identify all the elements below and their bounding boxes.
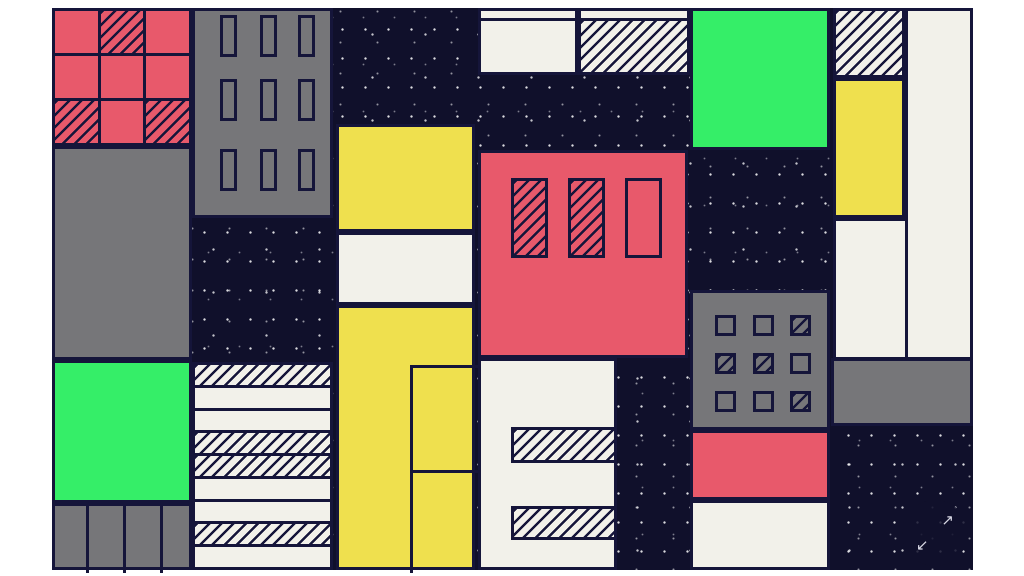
window <box>220 15 237 57</box>
block-bottom-cream-center <box>478 358 617 570</box>
panel-divider <box>410 470 478 473</box>
stripe-band-cream <box>195 544 330 567</box>
stripe-band-cream <box>195 385 330 408</box>
block-center-cream-band <box>336 232 475 305</box>
column-divider <box>86 506 89 573</box>
panel-divider <box>410 365 413 573</box>
window <box>568 178 605 258</box>
window <box>715 315 736 336</box>
grid-cell <box>146 101 189 143</box>
expand-arrow-ne-icon: ↗ <box>941 513 954 528</box>
block-green-block-right <box>690 8 830 150</box>
block-cream-block-right <box>833 218 908 360</box>
hatched-bar <box>511 506 617 540</box>
window <box>715 353 736 374</box>
grid-cell <box>146 56 189 98</box>
artwork-canvas: ↗ ↙ <box>52 8 973 570</box>
window <box>298 79 315 121</box>
stripe-band-cream <box>195 408 330 431</box>
expand-button[interactable]: ↗ ↙ <box>902 500 968 566</box>
red-grid-cells <box>55 11 189 143</box>
grid-cell <box>146 11 189 53</box>
block-gray-building-top <box>192 8 333 218</box>
block-stripe-building <box>192 362 333 570</box>
window <box>298 149 315 191</box>
expand-arrow-sw-icon: ↙ <box>916 538 929 553</box>
block-top-cream-left <box>478 18 578 75</box>
grid-cell <box>55 101 98 143</box>
block-gray-building-right <box>690 290 830 430</box>
stripe-band-hatch <box>195 430 330 453</box>
window <box>790 315 811 336</box>
grid-cell <box>101 101 144 143</box>
stripe-band-cream <box>195 476 330 499</box>
block-yellow-column <box>336 305 475 570</box>
hatched-bar <box>511 427 617 463</box>
window <box>715 391 736 412</box>
block-left-gray-block <box>52 146 192 360</box>
grid-cell <box>55 11 98 53</box>
block-red-band-right <box>690 430 830 500</box>
block-cream-column-right <box>905 8 973 360</box>
window <box>220 79 237 121</box>
block-yellow-top-block <box>336 124 475 232</box>
window <box>260 15 277 57</box>
block-red-building <box>478 150 688 358</box>
stripe-band-hatch <box>195 521 330 544</box>
block-left-green-block <box>52 360 192 503</box>
stripe-band-hatch <box>195 365 330 385</box>
column-divider <box>160 506 163 573</box>
grid-cell <box>55 56 98 98</box>
stripe-band-cream <box>195 499 330 522</box>
column-divider <box>123 506 126 573</box>
stripe-band-hatch <box>195 453 330 476</box>
window <box>260 79 277 121</box>
block-cream-block-bottom-right <box>690 500 830 570</box>
block-hatch-block-top-right <box>833 8 905 78</box>
window <box>790 391 811 412</box>
window <box>753 353 774 374</box>
block-red-grid <box>52 8 192 146</box>
block-yellow-block-right <box>833 78 905 218</box>
window <box>753 315 774 336</box>
window <box>220 149 237 191</box>
window <box>790 353 811 374</box>
grid-cell <box>101 56 144 98</box>
block-gray-band-right <box>831 358 973 426</box>
grid-cell <box>101 11 144 53</box>
block-top-hatch-right <box>578 18 690 75</box>
window <box>260 149 277 191</box>
panel-divider <box>410 365 478 368</box>
window <box>625 178 662 258</box>
window <box>511 178 548 258</box>
window <box>753 391 774 412</box>
window <box>298 15 315 57</box>
block-left-gray-columns <box>52 503 192 570</box>
